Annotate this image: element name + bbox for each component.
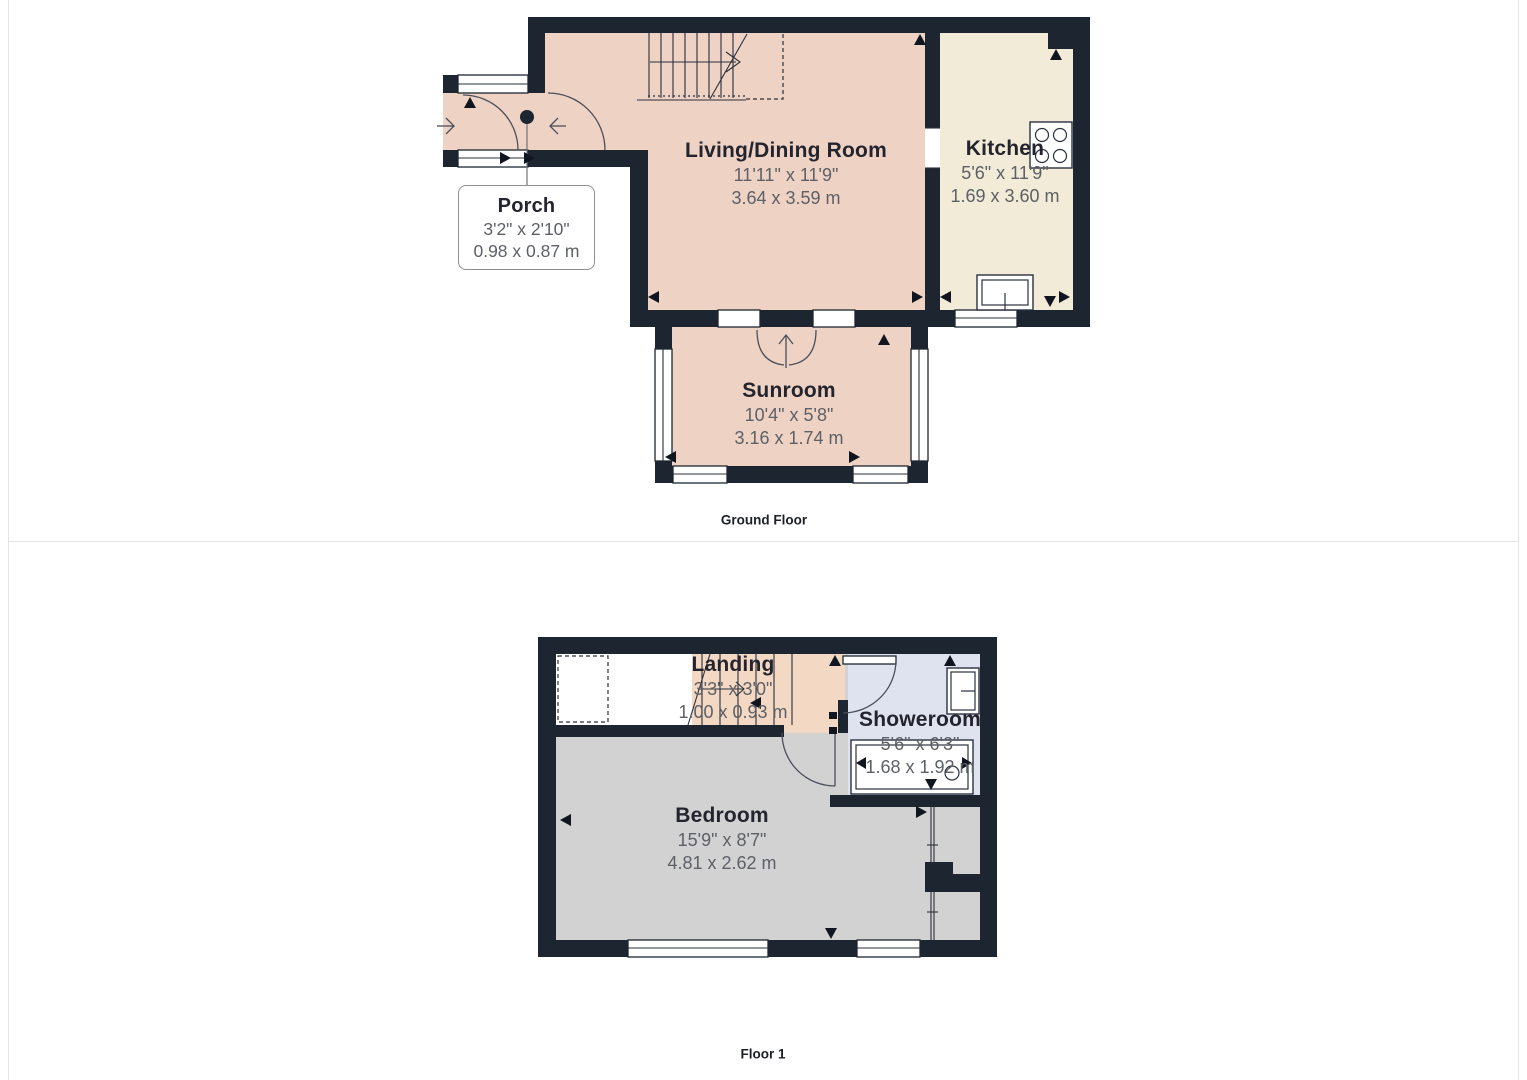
sunroom-label: Sunroom 10'4" x 5'8" 3.16 x 1.74 m [734,378,843,450]
floorplan-page: Porch 3'2" x 2'10" 0.98 x 0.87 m Living/… [0,0,1527,1080]
floor-1-label: Floor 1 [740,1047,785,1062]
room-name: Living/Dining Room [685,138,887,164]
ground-floor-label: Ground Floor [721,513,807,528]
wall [528,17,1090,33]
understairs-wall [556,725,784,737]
room-dims-imperial: 3'3" x 3'0" [678,678,787,701]
room-dims-metric: 1.00 x 0.93 m [678,701,787,724]
showeroom-label: Showeroom 5'6" x 6'3" 1.68 x 1.92 m [859,707,981,779]
kitchen-label: Kitchen 5'6" x 11'9" 1.69 x 3.60 m [950,136,1059,208]
showeroom-divider-wall [838,700,848,733]
room-dims-metric: 3.64 x 3.59 m [685,187,887,210]
room-dims-imperial: 5'6" x 6'3" [859,733,981,756]
landing-label: Landing 3'3" x 3'0" 1.00 x 0.93 m [678,652,787,724]
void-area [556,654,620,727]
room-dims-metric: 3.16 x 1.74 m [734,427,843,450]
callout-anchor-dot [520,110,534,124]
room-name: Sunroom [734,378,843,404]
room-dims-imperial: 5'6" x 11'9" [950,162,1059,185]
showeroom-bottom-wall [830,795,980,807]
room-dims-metric: 1.69 x 3.60 m [950,185,1059,208]
room-dims-metric: 4.81 x 2.62 m [667,852,776,875]
room-dims-metric: 1.68 x 1.92 m [859,756,981,779]
room-dims-imperial: 10'4" x 5'8" [734,404,843,427]
living-dining-room-label: Living/Dining Room 11'11" x 11'9" 3.64 x… [685,138,887,210]
porch-callout: Porch 3'2" x 2'10" 0.98 x 0.87 m [458,185,595,270]
room-dims-imperial: 15'9" x 8'7" [667,829,776,852]
kitchen-sink-icon [977,275,1033,310]
kitchen-divider-wall [925,33,940,128]
kitchen-divider-wall [925,168,940,310]
room-name: Porch [498,194,556,218]
room-name: Bedroom [667,803,776,829]
room-name: Kitchen [950,136,1059,162]
wall [538,637,556,957]
room-dims-metric: 0.98 x 0.87 m [473,240,579,262]
wall [980,637,997,957]
room-dims-imperial: 3'2" x 2'10" [483,218,569,240]
wall [1073,17,1090,327]
room-name: Landing [678,652,787,678]
wall [630,167,648,327]
wall [630,310,1090,327]
wall [1048,33,1073,49]
room-dims-imperial: 11'11" x 11'9" [685,164,887,187]
room-name: Showeroom [859,707,981,733]
bedroom-label: Bedroom 15'9" x 8'7" 4.81 x 2.62 m [667,803,776,875]
